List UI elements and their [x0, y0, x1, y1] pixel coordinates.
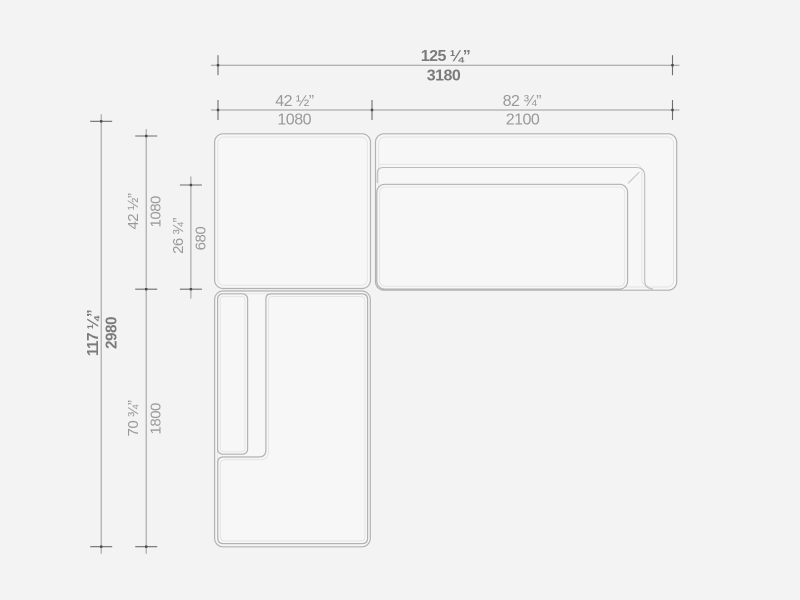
svg-text:2980: 2980 — [103, 317, 120, 349]
svg-text:26 ¾”: 26 ¾” — [170, 218, 187, 254]
svg-text:70 ¾”: 70 ¾” — [125, 400, 142, 436]
svg-text:125 ¼”: 125 ¼” — [421, 48, 470, 65]
svg-text:1080: 1080 — [277, 112, 311, 129]
svg-text:1080: 1080 — [147, 196, 164, 228]
svg-text:42 ½”: 42 ½” — [125, 193, 142, 229]
svg-text:82 ¾”: 82 ¾” — [503, 93, 542, 110]
svg-text:1800: 1800 — [147, 403, 164, 435]
svg-text:117 ¼”: 117 ¼” — [85, 310, 102, 356]
svg-text:680: 680 — [192, 227, 209, 251]
svg-text:42 ½”: 42 ½” — [275, 93, 314, 110]
svg-text:3180: 3180 — [427, 68, 461, 85]
svg-text:2100: 2100 — [506, 112, 540, 129]
